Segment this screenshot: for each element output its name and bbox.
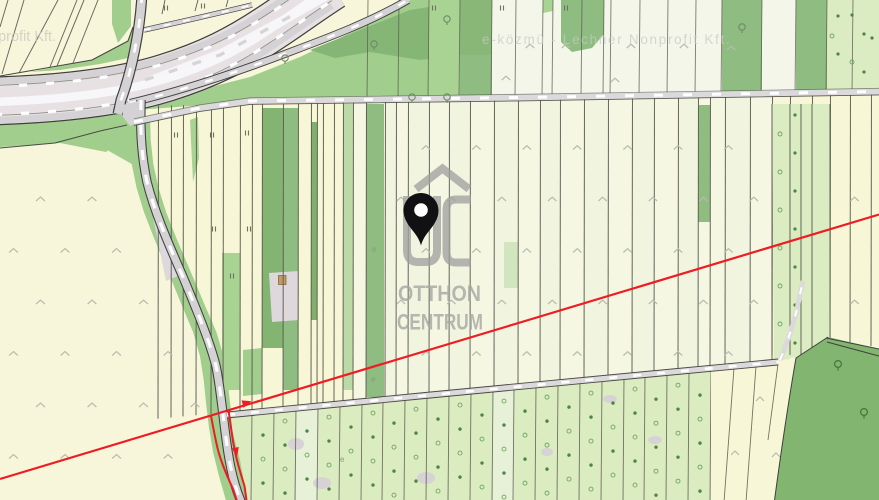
svg-text:OTTHON: OTTHON <box>398 281 481 306</box>
svg-text:e: e <box>340 455 345 464</box>
svg-text:e: e <box>371 375 376 384</box>
svg-text:CENTRUM: CENTRUM <box>397 310 483 335</box>
svg-text:nprofit Kft.: nprofit Kft. <box>0 29 56 45</box>
svg-text:e-közmü - Lechner Nonprofit Kf: e-közmü - Lechner Nonprofit Kft. <box>482 32 731 47</box>
svg-text:e: e <box>372 245 377 254</box>
